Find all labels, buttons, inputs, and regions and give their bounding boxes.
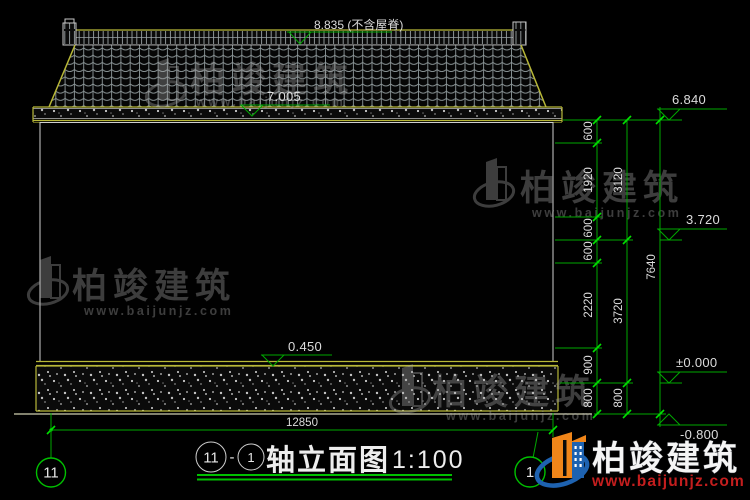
title-axis-left: 11 xyxy=(203,450,219,467)
axis-number: 1 xyxy=(526,464,534,481)
drawing-canvas: 柏竣建筑 www.baijunjz.com 柏竣建筑 www.baijunjz.… xyxy=(0,0,750,500)
title-axis-right: 1 xyxy=(247,450,254,465)
dim-value: 600 xyxy=(583,121,595,140)
level-value: 6.840 xyxy=(672,92,706,107)
dim-value: 800 xyxy=(583,388,595,407)
watermark-url: www.baijunjz.com xyxy=(83,304,233,318)
dim-value: 800 xyxy=(613,388,625,407)
dimension-chain-outer: 7640 xyxy=(646,107,664,427)
dim-value: 1920 xyxy=(583,167,595,193)
watermark-text: 柏竣建筑 xyxy=(520,168,684,208)
title-text: 轴立面图 xyxy=(266,443,390,477)
level-value: 7.005 xyxy=(267,89,301,104)
watermark-text: 柏竣建筑 xyxy=(432,372,596,412)
watermark-url: www.baijunjz.com xyxy=(445,409,595,423)
title-dash: - xyxy=(230,449,235,466)
watermark-text: 柏竣建筑 xyxy=(72,266,236,306)
level-value: ±0.000 xyxy=(676,355,717,370)
dim-value: 7640 xyxy=(646,254,658,280)
level-value: 3.720 xyxy=(686,212,720,227)
brand-logo: 柏竣建筑 www.baijunjz.com xyxy=(533,432,745,491)
dim-value: 3720 xyxy=(613,298,625,324)
axis-number: 11 xyxy=(43,465,59,482)
axis-bubble-left: 11 xyxy=(37,430,66,487)
ridge-ornament-left xyxy=(63,19,76,45)
cad-elevation-drawing: 柏竣建筑 www.baijunjz.com 柏竣建筑 www.baijunjz.… xyxy=(0,0,750,500)
level-marker-parapet: 6.840 xyxy=(657,92,727,120)
level-value: 8.835 (不含屋脊) xyxy=(314,17,403,32)
level-marker-zero: ±0.000 xyxy=(657,355,727,383)
dim-value: 600 xyxy=(583,218,595,237)
watermark-url: www.baijunjz.com xyxy=(531,206,681,220)
dim-value: 600 xyxy=(583,241,595,260)
level-marker-below-grade: -0.800 xyxy=(657,414,727,442)
ridge-ornament-right xyxy=(513,22,526,45)
wall-body xyxy=(40,123,553,362)
title-scale: 1:100 xyxy=(392,446,465,474)
eave-band xyxy=(33,107,562,123)
drawing-title: 11 - 1 轴立面图 1:100 xyxy=(196,442,465,480)
dim-value: 3120 xyxy=(613,167,625,193)
dimension-chain-inner: 600 1920 600 600 2220 900 800 xyxy=(583,116,601,418)
plinth-trim xyxy=(36,362,558,366)
level-value: 0.450 xyxy=(288,339,322,354)
dim-value: 12850 xyxy=(286,417,318,429)
dim-value: 2220 xyxy=(583,292,595,318)
brand-logo-url: www.baijunjz.com xyxy=(591,473,745,490)
dimension-chain-middle: 3120 3720 800 xyxy=(613,116,631,418)
axis-bubble-right: 1 xyxy=(515,432,545,487)
dim-value: 900 xyxy=(583,355,595,374)
